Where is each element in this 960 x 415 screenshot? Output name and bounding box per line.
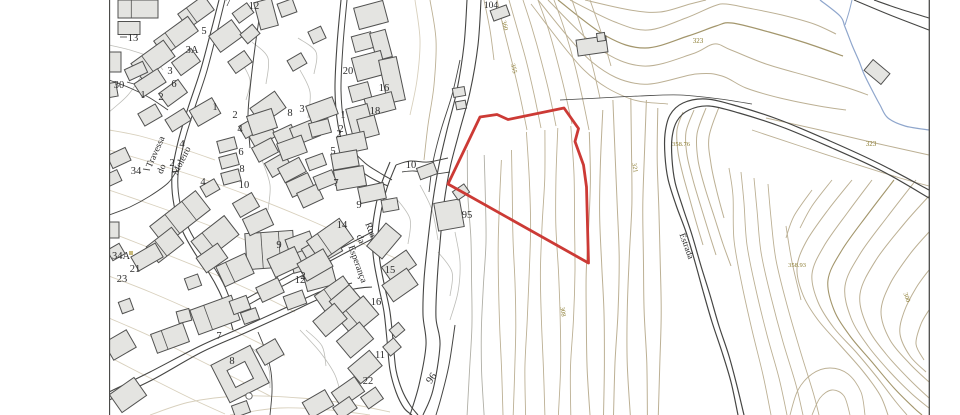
svg-text:13: 13: [128, 33, 139, 44]
svg-text:323: 323: [866, 140, 877, 148]
svg-text:20: 20: [343, 66, 354, 77]
svg-text:12: 12: [295, 275, 306, 286]
svg-text:7: 7: [333, 178, 338, 189]
svg-text:34A: 34A: [112, 251, 131, 262]
svg-text:8: 8: [287, 108, 292, 119]
svg-text:5: 5: [201, 26, 206, 37]
svg-text:95: 95: [462, 210, 473, 221]
svg-text:10: 10: [239, 180, 250, 191]
svg-text:23: 23: [117, 274, 128, 285]
svg-text:7: 7: [225, 0, 230, 9]
svg-text:9: 9: [356, 200, 361, 211]
svg-text:1: 1: [140, 90, 145, 101]
svg-text:9: 9: [276, 240, 281, 251]
svg-text:4: 4: [200, 177, 206, 188]
svg-text:4: 4: [237, 124, 243, 135]
svg-text:358.76: 358.76: [672, 141, 691, 148]
svg-text:11: 11: [375, 350, 385, 361]
svg-text:6: 6: [238, 147, 243, 158]
svg-text:15: 15: [385, 265, 396, 276]
svg-text:8: 8: [239, 164, 244, 175]
svg-text:358.93: 358.93: [788, 262, 806, 269]
svg-text:14: 14: [337, 220, 348, 231]
svg-text:1: 1: [340, 110, 345, 121]
svg-text:7: 7: [216, 331, 221, 342]
svg-text:3A: 3A: [186, 45, 199, 56]
svg-text:16: 16: [371, 297, 382, 308]
svg-text:2: 2: [158, 92, 163, 103]
svg-text:2: 2: [336, 129, 341, 140]
svg-text:21: 21: [130, 264, 141, 275]
svg-text:30: 30: [114, 80, 125, 91]
svg-text:5: 5: [330, 146, 335, 157]
svg-text:22: 22: [363, 376, 374, 387]
svg-text:34: 34: [131, 166, 142, 177]
svg-text:3: 3: [167, 66, 172, 77]
svg-text:8: 8: [229, 356, 234, 367]
svg-text:323: 323: [693, 37, 704, 45]
svg-text:104: 104: [484, 1, 499, 11]
svg-text:6: 6: [171, 79, 176, 90]
svg-text:2: 2: [232, 110, 237, 121]
svg-text:10: 10: [406, 160, 417, 171]
svg-text:1: 1: [212, 102, 217, 113]
svg-text:3: 3: [299, 104, 304, 115]
svg-text:12: 12: [249, 1, 260, 12]
svg-text:16: 16: [379, 83, 390, 94]
svg-text:18: 18: [370, 106, 381, 117]
